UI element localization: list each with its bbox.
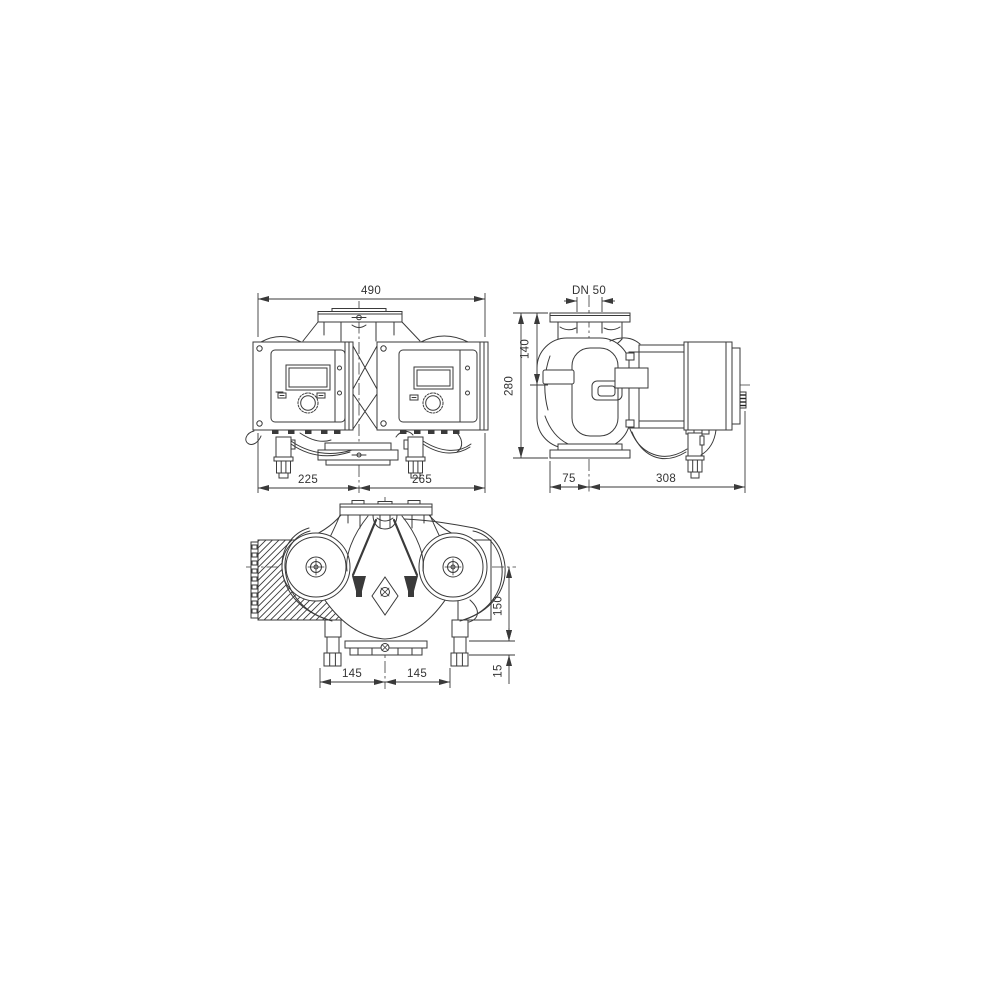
dim-label-145-left: 145 [342,668,362,680]
side-bottom-flange [550,444,630,458]
dim-label-140: 140 [520,339,532,359]
technical-drawing-canvas: 490 [0,0,1000,1000]
dim-label-75: 75 [562,473,575,485]
dim-label-15: 15 [493,664,505,677]
top-view: 150 15 145 145 [246,497,516,689]
dim-flange-nominal: DN 50 [564,285,615,312]
side-volute [537,338,630,452]
front-top-flange [261,309,468,343]
cable-gland-left [274,437,295,478]
dim-label-490: 490 [361,285,381,297]
dim-label-dn50: DN 50 [572,285,606,297]
module-terminal-strip [251,542,258,618]
dim-label-265: 265 [412,474,432,486]
dim-label-145-right: 145 [407,668,427,680]
motor-head-right [419,533,487,601]
top-base-flange [345,641,427,655]
cable-gland-right [404,437,425,478]
dim-label-225: 225 [298,474,318,486]
dim-label-280: 280 [504,376,516,396]
pressure-port [543,370,574,384]
dim-label-308: 308 [656,473,676,485]
control-module-right [377,342,488,430]
control-module-left [253,342,353,430]
front-center-pipe [353,346,377,429]
cable-gland-side [686,433,704,478]
side-motor [615,342,746,434]
front-view: 490 [246,285,488,493]
top-gland-left [324,620,341,666]
dim-label-150: 150 [493,596,505,616]
side-view: DN 50 [504,285,754,493]
pump-dimensional-drawing: 490 [0,0,1000,1000]
front-bottom-flange [318,443,398,465]
top-gland-right [451,620,468,666]
